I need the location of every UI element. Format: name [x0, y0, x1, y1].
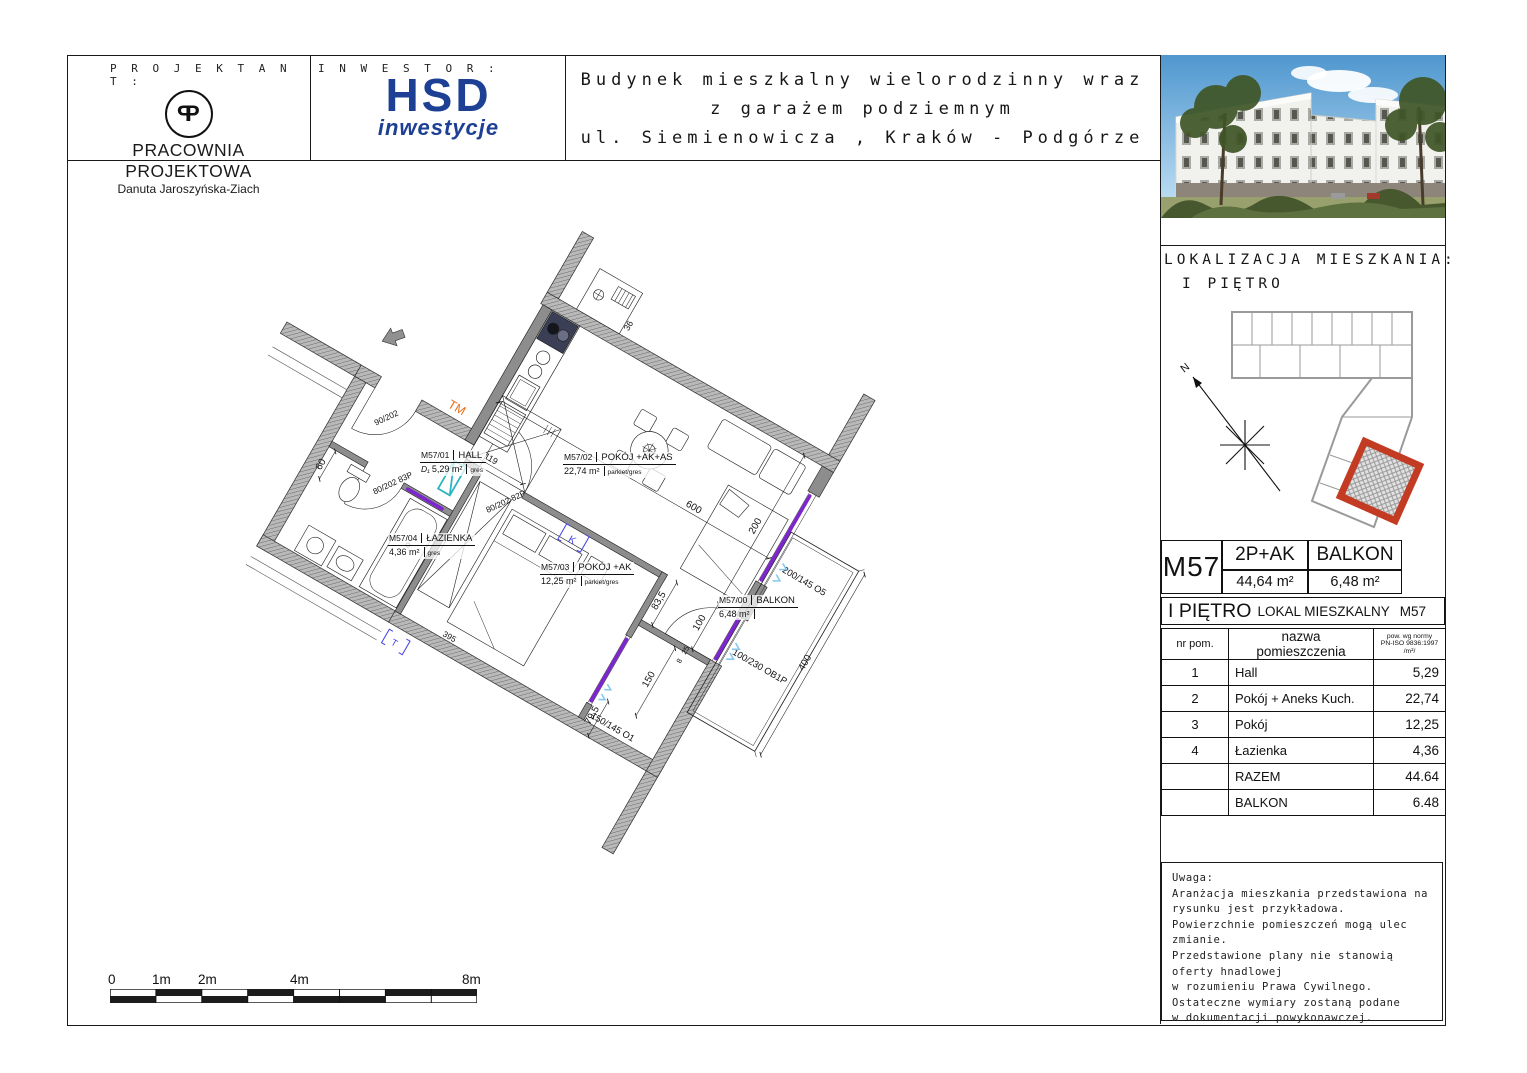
apartment-plan-rotated: 600 200 100 25 8 83,5 150 79,5 400 60 11… — [138, 160, 942, 893]
toilet — [333, 464, 370, 506]
sofa — [707, 419, 807, 496]
plan-sheet: P R O J E K T A N T : PP PRACOWNIA PROJE… — [0, 0, 1527, 1073]
unit-row-number: M57 — [1400, 604, 1426, 619]
col-area: pow. wg normy PN-ISO 9836:1997 /m²/ — [1374, 629, 1446, 660]
col-nr: nr pom. — [1162, 629, 1229, 660]
room-label-hall: M57/01HALL D₁5,29 m²gres — [420, 450, 486, 476]
balkon-header: BALKON — [1316, 544, 1393, 566]
rooms-table: nr pom. nazwa pomieszczenia pow. wg norm… — [1161, 628, 1446, 816]
hsd-logo-text: HSD — [316, 75, 561, 116]
scale-bar-graphic — [110, 989, 477, 1003]
location-miniplan: N — [1160, 295, 1445, 540]
note-line: Powierzchnie pomieszczeń mogą ulec — [1172, 918, 1442, 934]
hsd-logo-subtext: inwestycje — [316, 118, 561, 138]
svg-text:150: 150 — [640, 669, 658, 689]
divider-projektant-inwestor — [310, 55, 311, 160]
inwestor-box: I N W E S T O R : HSD inwestycje — [316, 58, 561, 158]
table-row: 4Łazienka4,36 — [1162, 738, 1446, 764]
car — [1331, 193, 1345, 199]
scale-label-0: 0 — [108, 972, 116, 987]
room-label-living: M57/02POKÓJ +AK+AS 22,74 m²parkiet/gres — [563, 452, 676, 478]
unit-row-label: LOKAL MIESZKALNY — [1257, 604, 1389, 619]
scale-label-8m: 8m — [462, 972, 481, 987]
location-heading: LOKALIZACJA MIESZKANIA: — [1164, 252, 1457, 268]
note-line: w dokumentacji powykonawczej. — [1172, 1011, 1442, 1027]
floor-plan: 600 200 100 25 8 83,5 150 79,5 400 60 11… — [67, 160, 1160, 1025]
unit-number: M57 — [1163, 551, 1220, 583]
dining-set — [610, 409, 690, 492]
photo-separator-line — [1161, 245, 1445, 246]
unit-area: 44,64 m² — [1236, 574, 1293, 590]
t-mark-label: T — [389, 637, 399, 649]
room-label-bedroom: M57/03POKÓJ +AK 12,25 m²parkiet/gres — [540, 562, 634, 588]
scale-bar: 0 1m 2m 4m 8m — [110, 972, 477, 1006]
scale-label-4m: 4m — [290, 972, 309, 987]
projektant-box: P R O J E K T A N T : PP PRACOWNIA PROJE… — [72, 58, 305, 158]
balkon-area-cell: 6,48 m² — [1308, 570, 1402, 594]
note-box: Uwaga: Aranżacja mieszkania przedstawion… — [1161, 862, 1443, 1021]
unit-number-cell: M57 — [1161, 540, 1222, 594]
note-line: zmianie. — [1172, 933, 1442, 949]
svg-text:80/202 82P: 80/202 82P — [484, 488, 527, 515]
title-line-2: z garażem podziemnym — [570, 95, 1155, 124]
svg-text:100: 100 — [691, 613, 709, 633]
table-row-total: RAZEM44.64 — [1162, 764, 1446, 790]
svg-text:400: 400 — [796, 653, 814, 673]
studio-logo: PP — [165, 90, 213, 138]
title-line-3: ul. Siemienowicza , Kraków - Podgórze — [570, 124, 1155, 153]
table-row: 1Hall5,29 — [1162, 660, 1446, 686]
compass — [1193, 377, 1280, 491]
divider-inwestor-title — [565, 55, 566, 160]
unit-type: 2P+AK — [1235, 544, 1295, 566]
table-row-balkon: BALKON6.48 — [1162, 790, 1446, 816]
title-line-1: Budynek mieszkalny wielorodzinny wraz — [570, 66, 1155, 95]
cloud — [1291, 66, 1327, 80]
unit-row-floor: I PIĘTRO — [1168, 600, 1251, 623]
project-title: Budynek mieszkalny wielorodzinny wraz z … — [570, 66, 1155, 153]
neighbour-outlines — [172, 347, 478, 640]
table-row: 2Pokój + Aneks Kuch.22,74 — [1162, 686, 1446, 712]
location-floor: I PIĘTRO — [1182, 276, 1284, 292]
projektant-label: P R O J E K T A N T : — [110, 62, 305, 88]
svg-text:100/230 OB1P: 100/230 OB1P — [731, 647, 789, 686]
north-label: N — [1178, 361, 1192, 375]
note-line: Przedstawione plany nie stanowią — [1172, 949, 1442, 965]
note-line: oferty hnadlowej — [1172, 965, 1442, 981]
table-row: 3Pokój12,25 — [1162, 712, 1446, 738]
unit-type-cell: 2P+AK — [1222, 540, 1308, 570]
note-line: Aranżacja mieszkania przedstawiona na — [1172, 887, 1442, 903]
tm-mark: TM — [445, 397, 468, 418]
svg-text:600: 600 — [684, 499, 704, 517]
scale-label-1m: 1m — [152, 972, 171, 987]
room-label-bathroom: M57/04ŁAZIENKA 4,36 m²gres — [388, 533, 475, 559]
note-line: Uwaga: — [1172, 871, 1442, 887]
hsd-logo: HSD inwestycje — [316, 75, 561, 138]
balkon-header-cell: BALKON — [1308, 540, 1402, 570]
entrance-arrow — [379, 325, 407, 350]
scale-label-2m: 2m — [198, 972, 217, 987]
unit-row-band: I PIĘTRO LOKAL MIESZKALNY M57 — [1161, 597, 1445, 625]
car-red — [1367, 193, 1380, 199]
unit-area-cell: 44,64 m² — [1222, 570, 1308, 594]
building-rendering — [1161, 55, 1445, 218]
highlighted-unit — [1340, 441, 1419, 520]
logo-letter-mirror: P — [177, 103, 192, 125]
note-line: Ostateczne wymiary zostaną podane — [1172, 996, 1442, 1012]
svg-text:200/145 O5: 200/145 O5 — [781, 565, 828, 598]
balkon-area: 6,48 m² — [1330, 574, 1379, 590]
note-line: w rozumieniu Prawa Cywilnego. — [1172, 980, 1442, 996]
svg-text:90/202: 90/202 — [373, 408, 401, 428]
col-name: nazwa pomieszczenia — [1229, 629, 1374, 660]
note-line: rysunku jest przykładowa. — [1172, 902, 1442, 918]
room-label-balkon: M57/00BALKON 6,48 m² — [718, 595, 798, 620]
svg-text:8: 8 — [674, 657, 684, 665]
rooms-table-header: nr pom. nazwa pomieszczenia pow. wg norm… — [1162, 629, 1446, 660]
